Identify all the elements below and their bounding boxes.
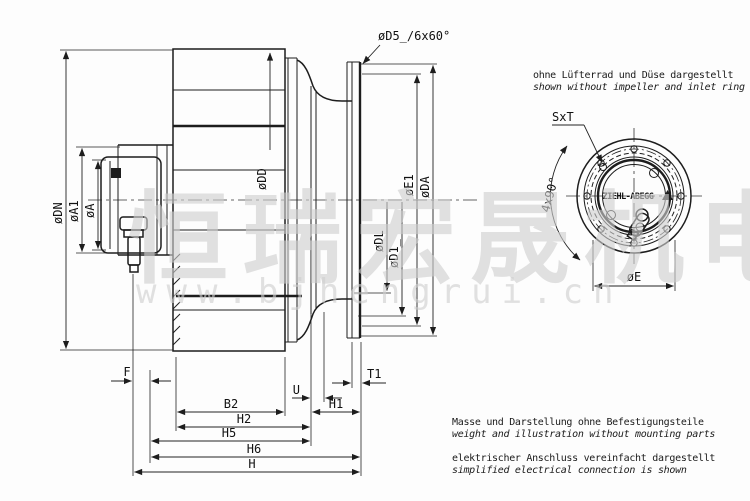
dim-label-a: øA [83, 203, 97, 218]
cable-gland [120, 217, 147, 272]
angle-arc [550, 146, 580, 260]
note-electrical-en: simplified electrical connection is show… [452, 465, 715, 477]
note-impeller: ohne Lüfterrad und Düse dargestellt show… [533, 70, 745, 94]
dim-label-sxt: SxT [552, 110, 574, 124]
hub-curve-bottom [297, 299, 352, 340]
note-weight-en: weight and illustration without mounting… [452, 429, 715, 441]
dim-label-h: H [248, 457, 255, 471]
hub-curve-top [297, 60, 352, 101]
note-weight: Masse und Darstellung ohne Befestigungst… [452, 417, 715, 441]
note-electrical: elektrischer Anschluss vereinfacht darge… [452, 453, 715, 477]
dim-label-f: F [123, 365, 130, 379]
dim-label-e1: øE1 [402, 174, 416, 196]
brand-logo-triangle-icon [662, 190, 673, 200]
main-view [88, 49, 480, 351]
dim-label-t1: T1 [367, 367, 381, 381]
terminal-block [111, 168, 121, 178]
end-cap [101, 157, 161, 253]
note-impeller-en: shown without impeller and inlet ring [533, 82, 745, 94]
dim-label-u: U [293, 383, 300, 397]
rear-view: ZIEHL-ABEGG SxT 4x90° øE [538, 110, 702, 291]
dim-label-h6: H6 [247, 442, 261, 456]
dim-label-h5: H5 [222, 426, 236, 440]
dim-label-h2: H2 [237, 412, 251, 426]
dim-label-da: øDA [418, 176, 432, 198]
hatch-edge [173, 254, 180, 345]
dim-label-dd: øDD [255, 168, 269, 190]
technical-drawing-page: øDN øA1 øA øDD øDL øD1_ øE1 øDA øD5_/6x6… [0, 0, 750, 501]
dim-label-4x90: 4x90° [538, 175, 561, 214]
dim-label-e: øE [627, 270, 641, 284]
note-impeller-de: ohne Lüfterrad und Düse dargestellt [533, 70, 745, 82]
dim-label-d1: øD1_ [387, 238, 401, 268]
dim-label-a1: øA1 [67, 200, 81, 222]
note-weight-de: Masse und Darstellung ohne Befestigungst… [452, 417, 715, 429]
dim-label-dn: øDN [51, 202, 65, 224]
dim-label-d5: øD5_/6x60° [378, 29, 450, 43]
dim-label-b2: B2 [224, 397, 238, 411]
rear-cable-gland [626, 209, 651, 241]
dim-label-dl: øDL [372, 230, 386, 252]
note-electrical-de: elektrischer Anschluss vereinfacht darge… [452, 453, 715, 465]
brand-logo-text: ZIEHL-ABEGG [603, 192, 654, 202]
dim-label-h1: H1 [329, 397, 343, 411]
